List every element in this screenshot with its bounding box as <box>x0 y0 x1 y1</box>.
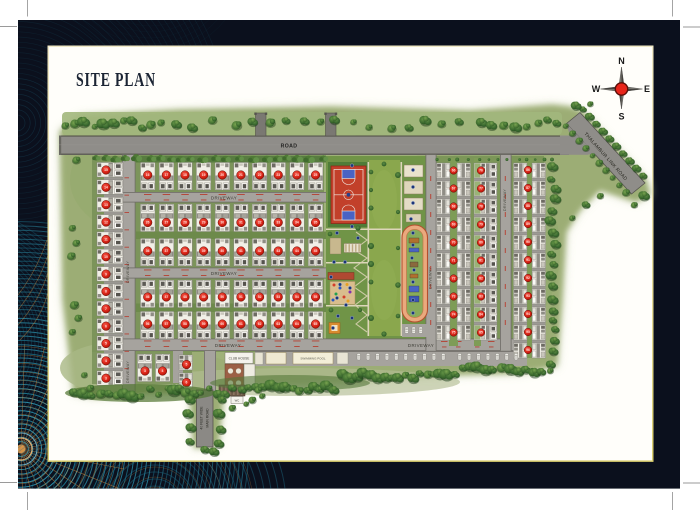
svg-text:10: 10 <box>104 255 108 259</box>
svg-text:DRIVEWAY: DRIVEWAY <box>211 271 237 276</box>
svg-text:74: 74 <box>452 313 456 317</box>
svg-text:42: 42 <box>258 249 262 253</box>
svg-text:81: 81 <box>479 259 483 263</box>
svg-text:89: 89 <box>526 222 530 226</box>
svg-text:84: 84 <box>479 313 483 317</box>
svg-text:91: 91 <box>526 258 530 262</box>
svg-text:85: 85 <box>479 331 483 335</box>
svg-text:4: 4 <box>162 369 164 373</box>
svg-text:4: 4 <box>105 359 107 363</box>
svg-text:78: 78 <box>479 205 483 209</box>
svg-text:86: 86 <box>526 168 530 172</box>
svg-text:40 FEET WIDE: 40 FEET WIDE <box>200 406 204 430</box>
svg-text:22: 22 <box>258 173 262 177</box>
svg-text:DRIVEWAY: DRIVEWAY <box>215 343 241 348</box>
svg-text:N: N <box>618 56 625 66</box>
svg-text:21: 21 <box>239 173 243 177</box>
svg-text:43: 43 <box>276 249 280 253</box>
svg-text:65: 65 <box>314 322 318 326</box>
svg-text:DRIVEWAY: DRIVEWAY <box>211 195 237 200</box>
svg-text:34: 34 <box>295 221 299 225</box>
svg-text:28: 28 <box>183 221 187 225</box>
svg-text:45: 45 <box>314 249 318 253</box>
svg-text:E: E <box>644 84 650 94</box>
svg-text:67: 67 <box>452 187 456 191</box>
svg-text:WC: WC <box>235 399 240 403</box>
svg-text:87: 87 <box>526 186 530 190</box>
svg-text:64: 64 <box>295 322 299 326</box>
svg-text:95: 95 <box>526 330 530 334</box>
svg-text:DRIVEWAY: DRIVEWAY <box>503 189 507 211</box>
svg-text:9: 9 <box>105 272 107 276</box>
svg-text:25: 25 <box>314 173 318 177</box>
svg-text:24: 24 <box>295 173 299 177</box>
svg-text:46: 46 <box>146 295 150 299</box>
svg-text:26: 26 <box>146 221 150 225</box>
svg-text:94: 94 <box>526 312 530 316</box>
svg-text:ROAD: ROAD <box>281 143 298 149</box>
svg-text:41: 41 <box>239 249 243 253</box>
svg-text:56: 56 <box>146 322 150 326</box>
svg-text:57: 57 <box>164 322 168 326</box>
svg-text:CLUB HOUSE: CLUB HOUSE <box>229 357 250 361</box>
svg-text:W: W <box>592 84 601 94</box>
svg-text:52: 52 <box>258 295 262 299</box>
svg-text:49: 49 <box>202 295 206 299</box>
svg-text:13: 13 <box>104 203 108 207</box>
svg-text:14: 14 <box>104 186 108 190</box>
svg-text:DRIVEWAY: DRIVEWAY <box>408 343 434 348</box>
svg-text:38: 38 <box>183 249 187 253</box>
svg-text:27: 27 <box>164 221 168 225</box>
svg-text:90: 90 <box>526 240 530 244</box>
svg-text:93: 93 <box>526 294 530 298</box>
svg-text:76: 76 <box>479 169 483 173</box>
svg-text:73: 73 <box>452 295 456 299</box>
svg-text:47: 47 <box>164 295 168 299</box>
svg-text:DRIVEWAY: DRIVEWAY <box>126 261 130 283</box>
svg-text:MAIN ROAD: MAIN ROAD <box>206 408 210 428</box>
svg-text:48: 48 <box>183 295 187 299</box>
svg-text:58: 58 <box>183 322 187 326</box>
svg-text:36: 36 <box>146 249 150 253</box>
svg-text:23: 23 <box>276 173 280 177</box>
svg-text:71: 71 <box>452 259 456 263</box>
svg-text:15: 15 <box>104 168 108 172</box>
svg-text:35: 35 <box>314 221 318 225</box>
svg-text:61: 61 <box>239 322 243 326</box>
svg-text:92: 92 <box>526 276 530 280</box>
svg-text:80: 80 <box>479 241 483 245</box>
svg-text:19: 19 <box>202 173 206 177</box>
svg-text:33: 33 <box>276 221 280 225</box>
svg-text:79: 79 <box>479 223 483 227</box>
svg-text:17: 17 <box>164 173 168 177</box>
svg-text:SITE PLAN: SITE PLAN <box>76 67 156 90</box>
svg-text:60: 60 <box>220 322 224 326</box>
svg-text:6: 6 <box>186 381 188 385</box>
svg-text:62: 62 <box>258 322 262 326</box>
svg-text:82: 82 <box>479 277 483 281</box>
svg-text:31: 31 <box>239 221 243 225</box>
svg-text:40: 40 <box>220 249 224 253</box>
svg-text:50: 50 <box>220 295 224 299</box>
svg-text:18: 18 <box>183 173 187 177</box>
svg-text:3: 3 <box>144 369 146 373</box>
svg-text:5: 5 <box>105 342 107 346</box>
svg-text:54: 54 <box>295 295 299 299</box>
svg-text:63: 63 <box>276 322 280 326</box>
svg-text:DRIVEWAY: DRIVEWAY <box>428 267 432 289</box>
svg-text:77: 77 <box>479 187 483 191</box>
svg-text:68: 68 <box>452 205 456 209</box>
svg-text:69: 69 <box>452 223 456 227</box>
svg-text:32: 32 <box>258 221 262 225</box>
svg-text:7: 7 <box>105 307 107 311</box>
svg-text:72: 72 <box>452 277 456 281</box>
svg-text:8: 8 <box>105 290 107 294</box>
svg-text:16: 16 <box>146 173 150 177</box>
svg-text:44: 44 <box>295 249 299 253</box>
svg-text:75: 75 <box>452 331 456 335</box>
svg-text:29: 29 <box>202 221 206 225</box>
svg-text:6: 6 <box>105 324 107 328</box>
svg-text:DRIVEWAY: DRIVEWAY <box>126 361 130 383</box>
svg-text:55: 55 <box>314 295 318 299</box>
svg-text:SWIMMING POOL: SWIMMING POOL <box>300 357 325 361</box>
svg-text:30: 30 <box>220 221 224 225</box>
svg-text:51: 51 <box>239 295 243 299</box>
svg-text:96: 96 <box>526 348 530 352</box>
svg-text:20: 20 <box>220 173 224 177</box>
svg-text:53: 53 <box>276 295 280 299</box>
svg-text:5: 5 <box>186 363 188 367</box>
svg-text:70: 70 <box>452 241 456 245</box>
svg-text:59: 59 <box>202 322 206 326</box>
svg-text:39: 39 <box>202 249 206 253</box>
svg-text:88: 88 <box>526 204 530 208</box>
svg-text:66: 66 <box>452 169 456 173</box>
svg-text:37: 37 <box>164 249 168 253</box>
svg-text:11: 11 <box>104 238 108 242</box>
svg-text:83: 83 <box>479 295 483 299</box>
svg-text:3: 3 <box>105 376 107 380</box>
svg-text:S: S <box>618 112 624 122</box>
svg-text:12: 12 <box>104 220 108 224</box>
